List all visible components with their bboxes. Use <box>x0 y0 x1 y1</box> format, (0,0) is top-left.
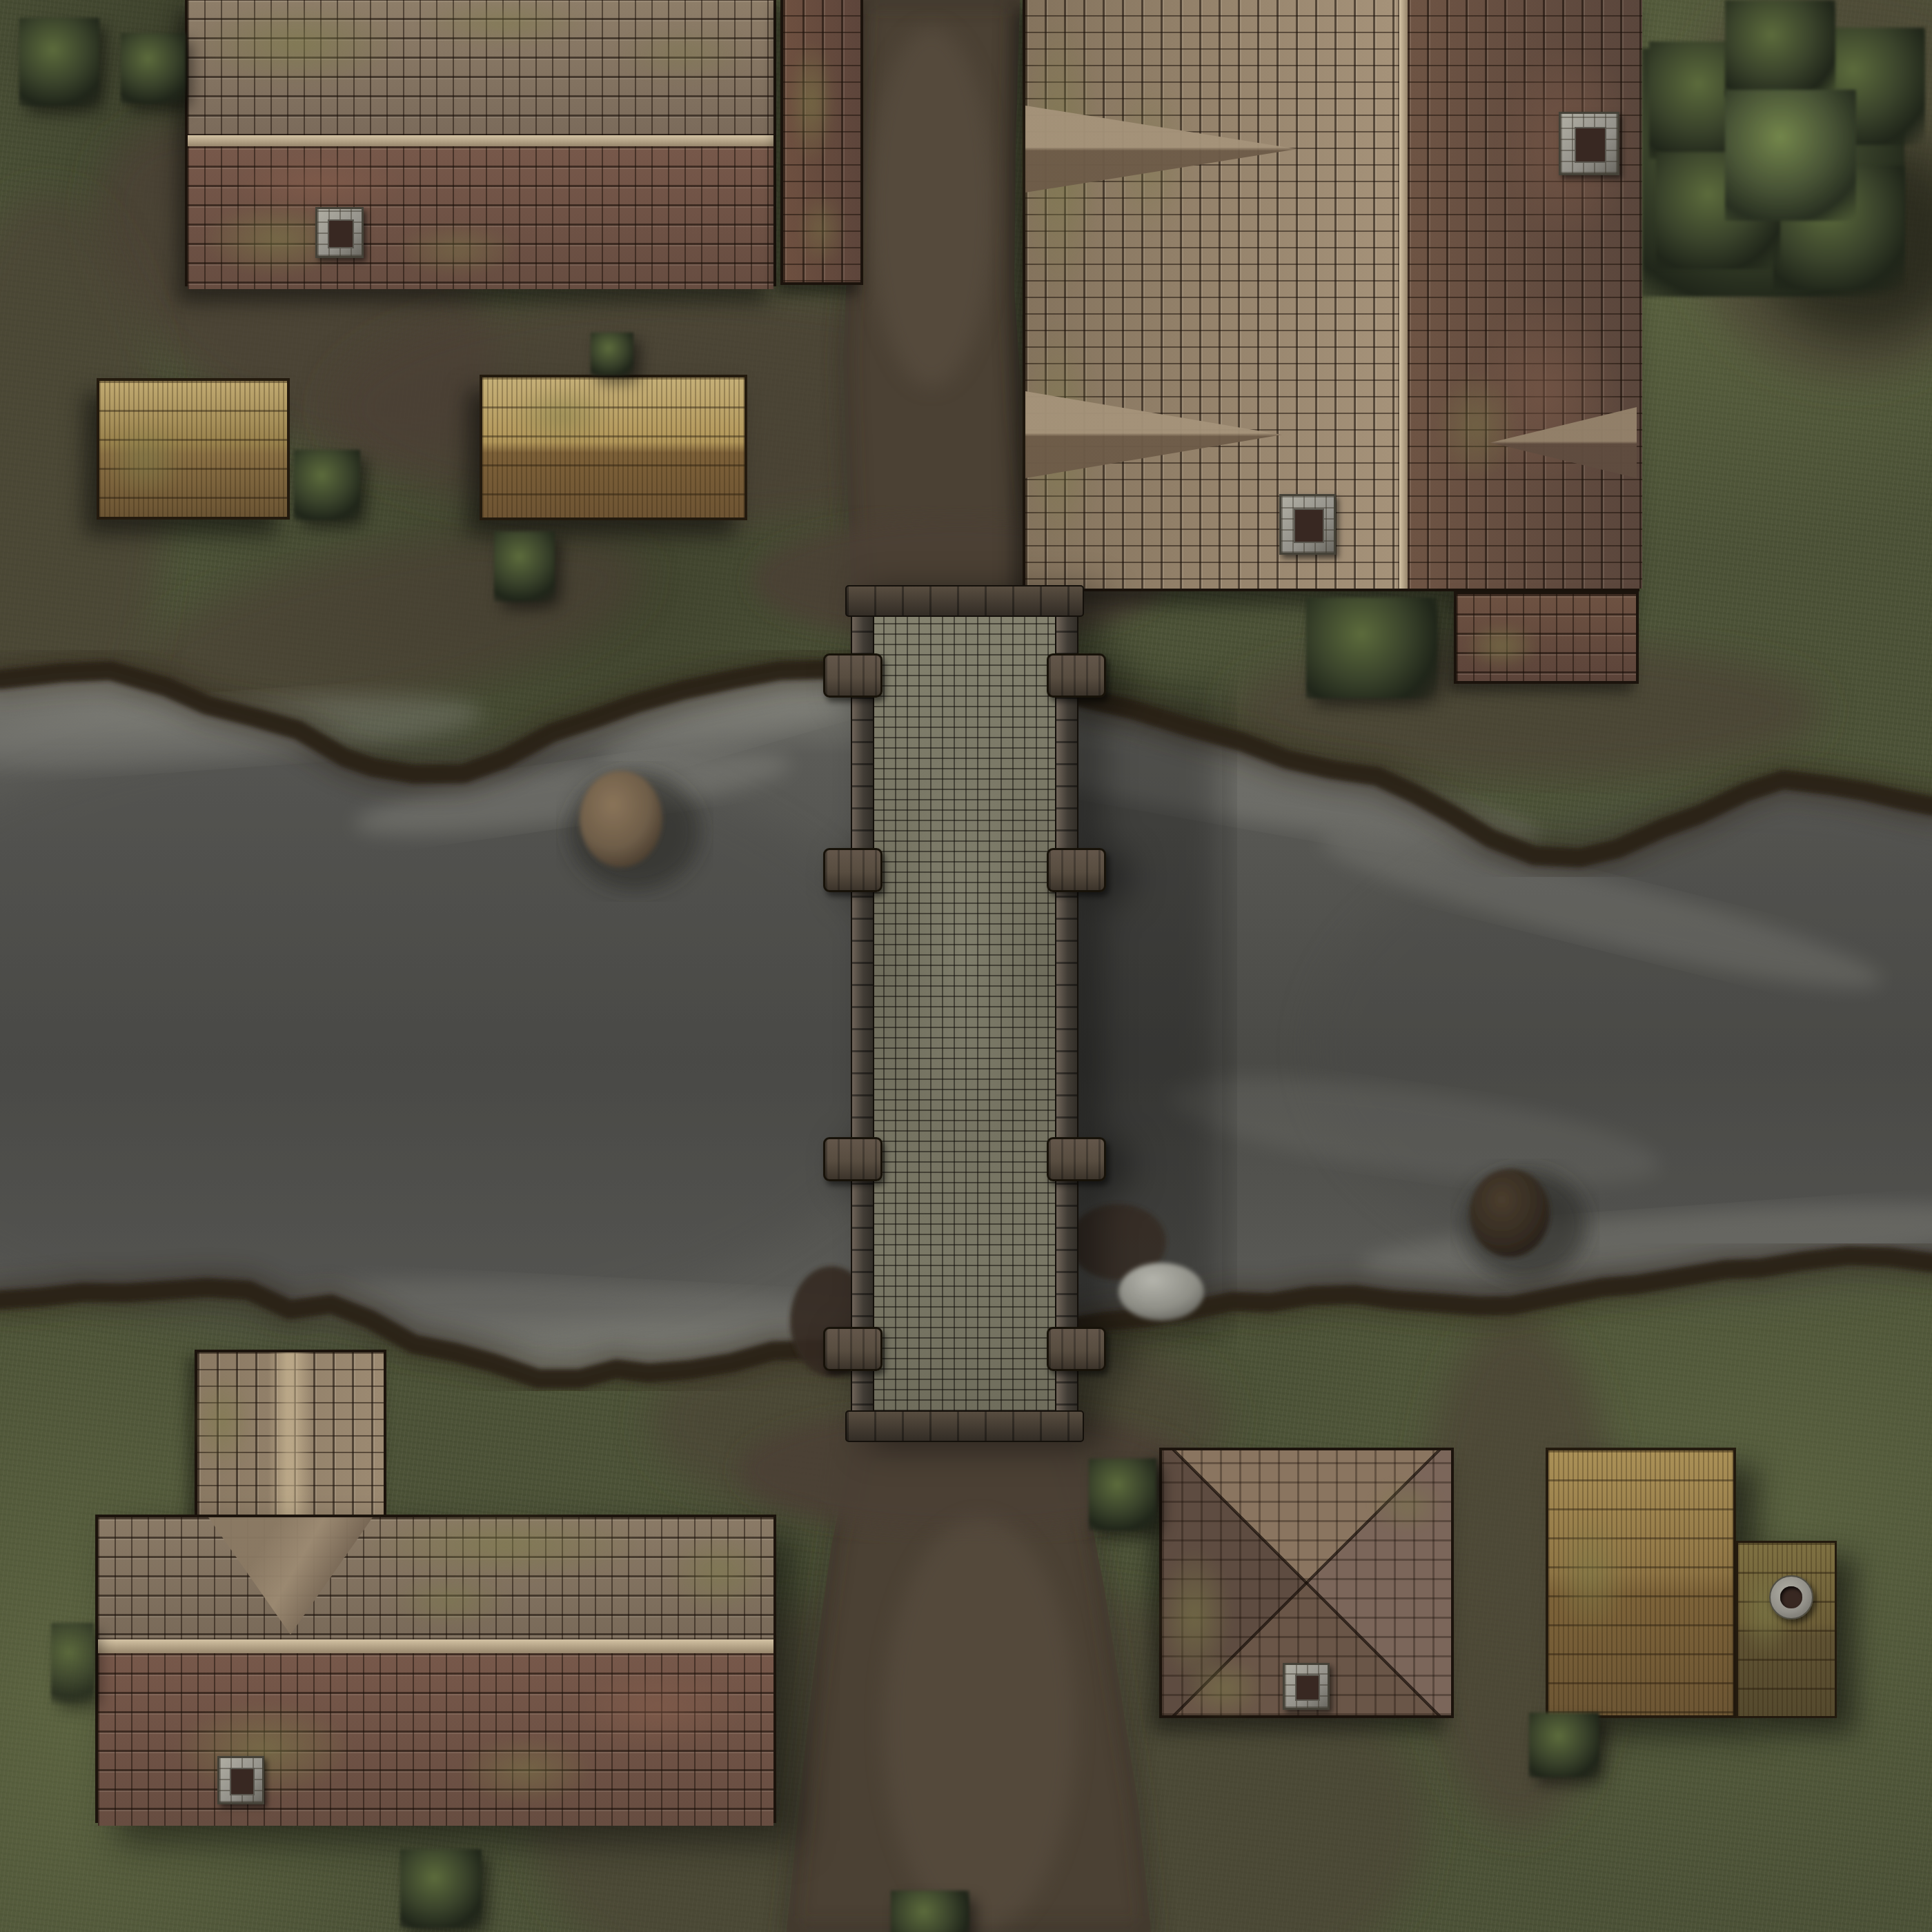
roof-west-slope <box>1025 0 1403 589</box>
roof-stain <box>567 1667 747 1750</box>
roof-ridge-vertical <box>1399 0 1408 589</box>
moss-patch <box>1369 1478 1445 1533</box>
bridge-beam <box>823 848 883 892</box>
moss-patch <box>103 422 186 498</box>
bush <box>591 333 633 375</box>
thatched-hut-west <box>97 378 290 520</box>
bridge-parapet-east <box>1055 585 1078 1442</box>
bush <box>1306 598 1437 698</box>
bridge-beam <box>1047 1327 1106 1371</box>
roof-ridge <box>98 1639 773 1653</box>
chimney <box>1279 494 1336 555</box>
roof-lower-slope <box>188 146 773 289</box>
bank-boulder <box>1118 1263 1204 1321</box>
bridge-beam <box>1047 848 1106 892</box>
building-longhouse-nw <box>185 0 776 286</box>
chimney <box>1283 1663 1330 1710</box>
building-longhouse-sw-wing <box>195 1350 386 1522</box>
bridge-beam <box>823 653 883 698</box>
bush <box>294 450 360 520</box>
moss-patch <box>797 192 845 268</box>
bush <box>400 1849 482 1928</box>
wing-ridge-highlight <box>197 1352 384 1519</box>
roof-stain <box>229 153 408 215</box>
moss-patch <box>1156 1547 1232 1685</box>
stone-bridge <box>851 585 1078 1442</box>
bridge-beam <box>823 1137 883 1181</box>
tree-canopy-lobe <box>1725 90 1856 221</box>
moss-patch <box>457 1736 595 1805</box>
building-longhouse-nw-annex <box>780 0 863 285</box>
stone-well <box>1769 1575 1813 1619</box>
moss-patch <box>664 1531 774 1614</box>
well-opening <box>1780 1586 1802 1608</box>
moss-patch <box>510 384 613 446</box>
bush <box>1089 1459 1156 1530</box>
tree-canopy-lobe <box>1725 0 1835 97</box>
moss-lump <box>51 1623 94 1704</box>
chimney-flue <box>1575 127 1607 163</box>
roof-upper-slope <box>98 1517 773 1639</box>
moss-patch <box>388 1573 512 1628</box>
moss-patch <box>415 0 595 47</box>
river-rock-brown <box>580 771 662 867</box>
river-rock-dark <box>1470 1169 1550 1257</box>
bridge-beam <box>1047 653 1106 698</box>
moss-patch <box>395 222 519 277</box>
moss-patch <box>787 40 836 164</box>
chimney <box>1559 112 1619 175</box>
moss-patch <box>1463 622 1539 670</box>
bridge-beam <box>823 1327 883 1371</box>
moss-patch <box>360 1510 650 1579</box>
chimney-flue <box>328 219 353 248</box>
bush <box>891 1891 969 1932</box>
moss-patch <box>195 3 402 86</box>
chimney-flue <box>230 1768 255 1795</box>
bush <box>121 33 186 103</box>
thatched-lean-to-se <box>1736 1541 1837 1718</box>
roof-lower-slope <box>98 1653 773 1826</box>
bush <box>1529 1713 1599 1777</box>
bridge-deck-cobblestones <box>871 613 1058 1414</box>
roof-east-slope <box>1408 0 1642 589</box>
roof-ridge <box>188 135 773 146</box>
bridge-beam <box>1047 1137 1106 1181</box>
bridge-end-cap-south <box>845 1410 1084 1442</box>
large-tree <box>1628 0 1918 310</box>
thatched-house-se <box>1546 1448 1736 1718</box>
building-longhouse-sw <box>95 1515 776 1823</box>
battle-map <box>0 0 1932 1932</box>
thatched-barn-west <box>480 375 747 520</box>
bush <box>19 18 99 106</box>
moss-patch <box>1183 1657 1265 1719</box>
bridge-end-cap-north <box>845 585 1084 617</box>
chimney <box>315 207 364 258</box>
moss-patch <box>615 26 753 81</box>
moss-patch <box>1552 1512 1628 1637</box>
moss-patch <box>1435 371 1518 482</box>
chimney-flue <box>1295 1675 1320 1702</box>
bridge-parapet-west <box>851 585 874 1442</box>
roof-upper-slope <box>188 0 773 141</box>
chimney <box>217 1756 264 1804</box>
chimney-flue <box>1294 509 1324 543</box>
building-great-hall-annex <box>1454 591 1639 684</box>
bush <box>494 531 555 602</box>
